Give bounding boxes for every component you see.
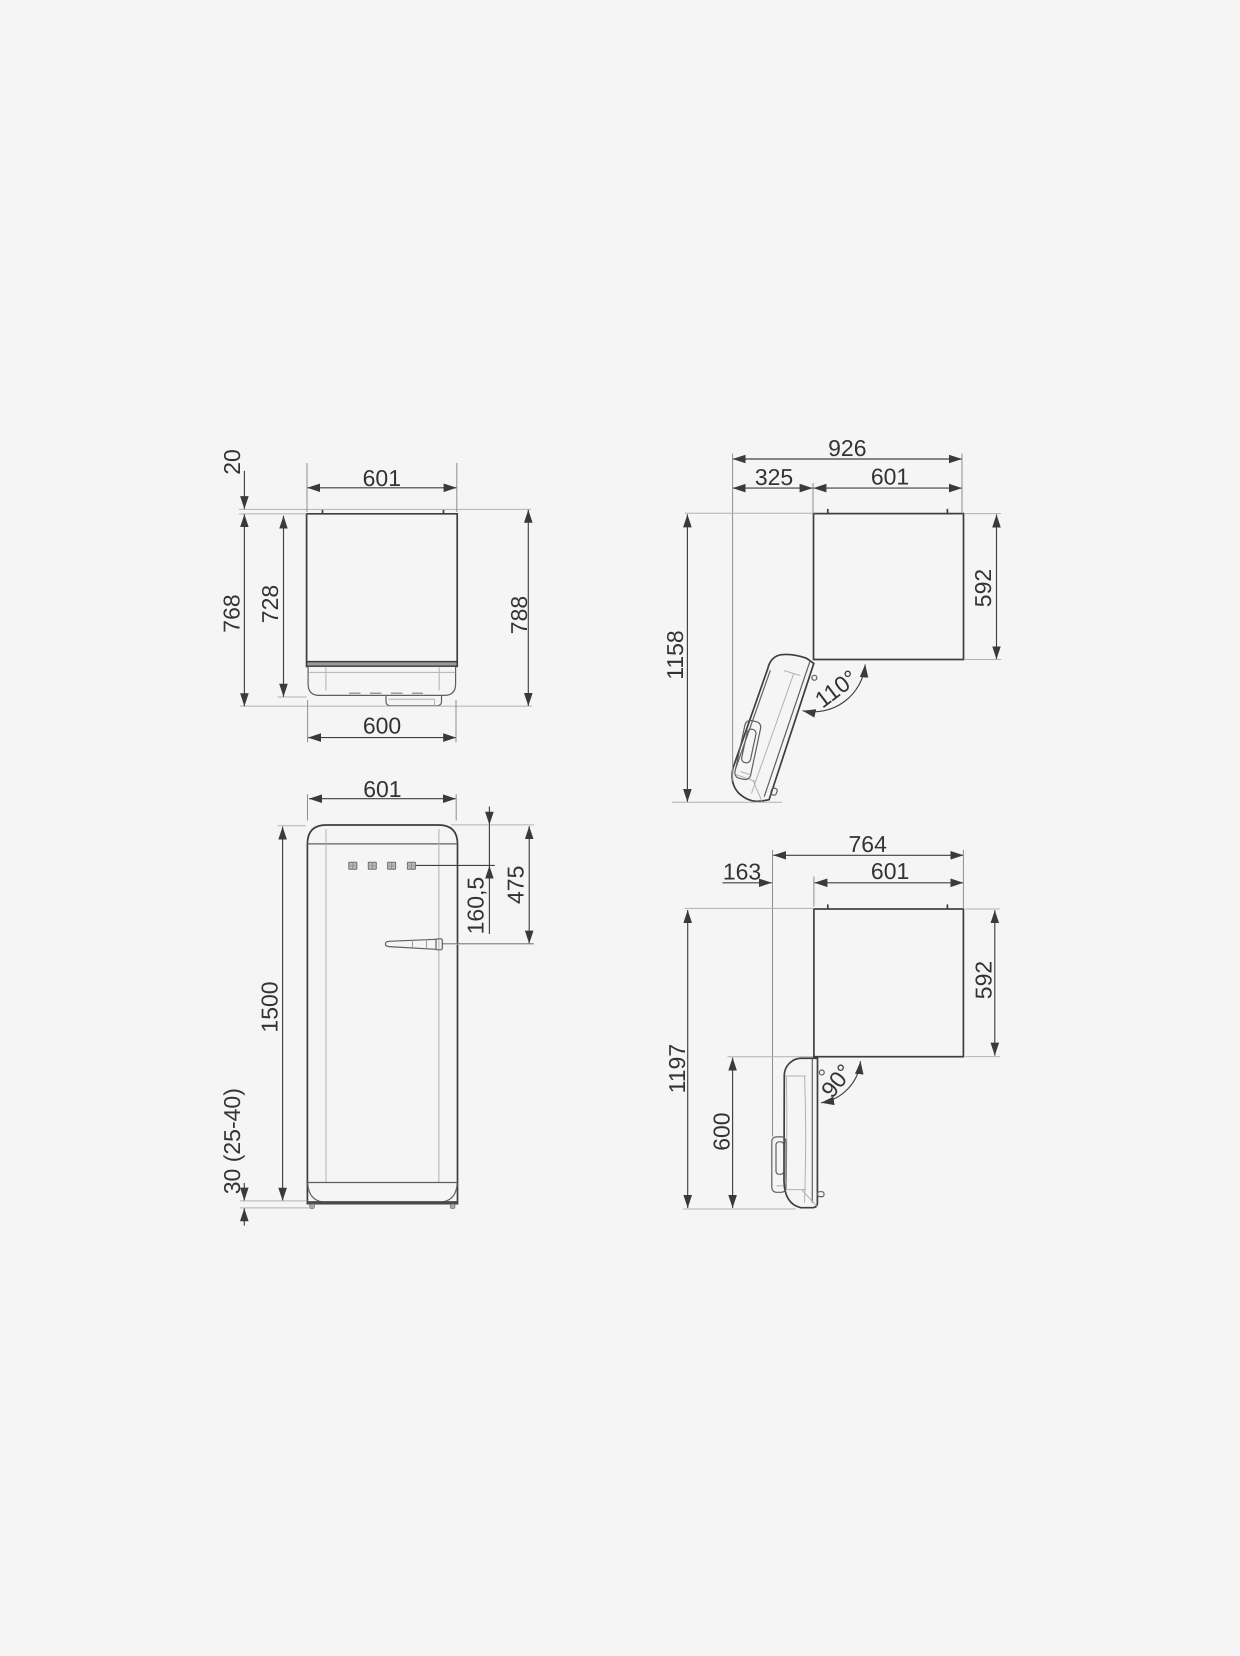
svg-text:788: 788	[506, 596, 532, 634]
svg-text:1500: 1500	[256, 981, 282, 1032]
svg-text:601: 601	[363, 776, 401, 802]
svg-text:601: 601	[871, 858, 909, 884]
svg-text:90°: 90°	[816, 1059, 858, 1102]
svg-text:1197: 1197	[664, 1044, 690, 1093]
svg-text:601: 601	[363, 465, 401, 491]
svg-text:163: 163	[723, 859, 761, 885]
svg-text:592: 592	[970, 569, 996, 607]
svg-text:325: 325	[755, 464, 793, 490]
svg-text:160,5: 160,5	[463, 877, 489, 935]
svg-text:30 (25-40): 30 (25-40)	[219, 1088, 245, 1194]
svg-text:20: 20	[219, 449, 245, 475]
svg-text:926: 926	[828, 435, 866, 461]
svg-text:475: 475	[502, 866, 528, 904]
svg-text:600: 600	[708, 1112, 734, 1150]
svg-text:601: 601	[871, 464, 909, 490]
svg-text:764: 764	[849, 831, 888, 857]
svg-text:728: 728	[257, 585, 283, 623]
svg-text:110°: 110°	[810, 665, 862, 713]
svg-text:592: 592	[971, 961, 997, 999]
svg-text:600: 600	[363, 713, 401, 739]
svg-text:768: 768	[219, 594, 245, 632]
svg-text:1158: 1158	[662, 630, 688, 679]
